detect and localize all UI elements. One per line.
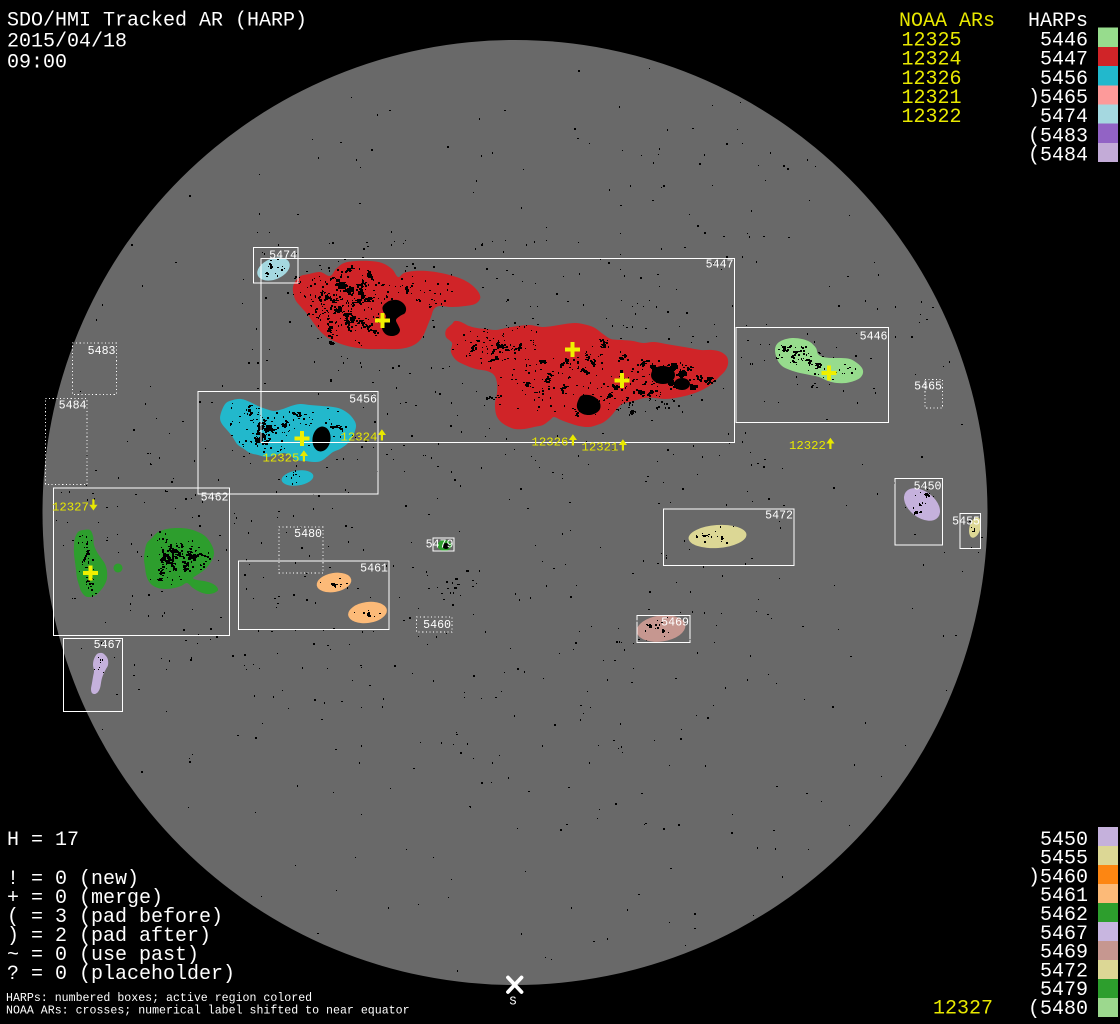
svg-text:5456: 5456	[349, 394, 377, 407]
svg-text:SDO/HMI Tracked AR (HARP): SDO/HMI Tracked AR (HARP)	[7, 10, 307, 33]
svg-text:12327: 12327	[52, 501, 89, 515]
svg-text:H = 17: H = 17	[7, 829, 79, 852]
svg-text:12327: 12327	[933, 998, 993, 1021]
svg-text:12325: 12325	[263, 452, 300, 466]
svg-text:5483: 5483	[88, 345, 116, 358]
svg-text:NOAA ARs: crosses; numerical l: NOAA ARs: crosses; numerical label shift…	[6, 1005, 410, 1018]
svg-text:(5480: (5480	[1028, 998, 1088, 1021]
svg-text:5455: 5455	[952, 516, 980, 529]
svg-text:5472: 5472	[765, 510, 793, 523]
svg-text:5465: 5465	[914, 381, 942, 394]
svg-text:5461: 5461	[360, 563, 388, 576]
svg-text:5462: 5462	[201, 492, 229, 505]
svg-text:12322: 12322	[789, 439, 826, 453]
svg-text:12321: 12321	[582, 441, 619, 455]
svg-text:12322: 12322	[902, 106, 962, 129]
svg-text:S: S	[509, 995, 516, 1009]
svg-text:HARPs: numbered boxes; active: HARPs: numbered boxes; active region col…	[6, 992, 312, 1005]
svg-text:12326: 12326	[532, 436, 569, 450]
svg-text:5484: 5484	[59, 400, 87, 413]
svg-text:5450: 5450	[914, 481, 942, 494]
svg-text:5460: 5460	[423, 619, 451, 632]
svg-text:5469: 5469	[661, 617, 689, 630]
svg-text:5474: 5474	[269, 250, 297, 263]
svg-text:5447: 5447	[706, 259, 734, 272]
svg-text:(5484: (5484	[1028, 145, 1088, 168]
svg-text:5467: 5467	[94, 639, 122, 652]
svg-text:5446: 5446	[860, 331, 888, 344]
svg-text:09:00: 09:00	[7, 51, 67, 74]
svg-text:5480: 5480	[294, 528, 322, 541]
svg-text:2015/04/18: 2015/04/18	[7, 30, 127, 53]
svg-text:? = 0 (placeholder): ? = 0 (placeholder)	[7, 963, 235, 986]
svg-text:5479: 5479	[426, 539, 454, 552]
svg-text:12324: 12324	[341, 431, 378, 445]
